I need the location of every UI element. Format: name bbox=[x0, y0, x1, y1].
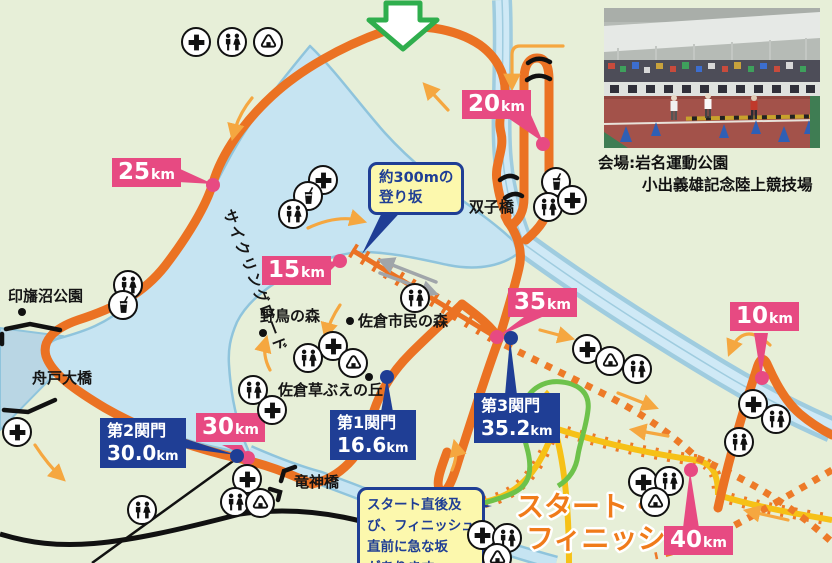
venue-caption-line2: 小出義雄記念陸上競技場 bbox=[598, 174, 813, 196]
label-futago-bridge: 双子橋 bbox=[469, 199, 514, 216]
venue-photo-art bbox=[604, 8, 820, 148]
slope-callout: 約300mの 登り坂 bbox=[368, 162, 464, 215]
km-badge-30: 30km bbox=[196, 413, 265, 442]
course-direction-arrow-icon bbox=[369, 3, 437, 49]
label-kusabue-hill: 佐倉草ぶえの丘 bbox=[278, 382, 383, 399]
checkpoint-1-box: 第1関門 16.6km bbox=[330, 410, 416, 460]
km-badge-25: 25km bbox=[112, 158, 181, 187]
label-inbanuma-park: 印旛沼公園 bbox=[8, 288, 83, 305]
label-sakura-shimin-forest: 佐倉市民の森 bbox=[358, 313, 448, 330]
svg-text:スタート・: スタート・ bbox=[516, 490, 656, 523]
venue-photo bbox=[604, 8, 820, 148]
km-badge-10: 10km bbox=[730, 302, 799, 331]
km-badge-15: 15km bbox=[262, 256, 331, 285]
steep-slope-callout: スタート直後及 び、フィニッシュ 直前に急な坂 があります。 bbox=[357, 487, 485, 563]
label-ryujin-bridge: 竜神橋 bbox=[294, 474, 339, 491]
km-badge-20: 20km bbox=[462, 90, 531, 119]
label-funado-bridge: 舟戸大橋 bbox=[32, 370, 92, 387]
course-map: スタート・ フィニッシュ bbox=[0, 0, 832, 563]
rail-line bbox=[92, 456, 240, 563]
km-badge-40: 40km bbox=[664, 526, 733, 555]
venue-caption: 会場:岩名運動公園 小出義雄記念陸上競技場 bbox=[598, 152, 813, 197]
venue-caption-line1: 会場:岩名運動公園 bbox=[598, 152, 813, 174]
km-badge-35: 35km bbox=[508, 288, 577, 317]
checkpoint-3-box: 第3関門 35.2km bbox=[474, 393, 560, 443]
checkpoint-2-box: 第2関門 30.0km bbox=[100, 418, 186, 468]
